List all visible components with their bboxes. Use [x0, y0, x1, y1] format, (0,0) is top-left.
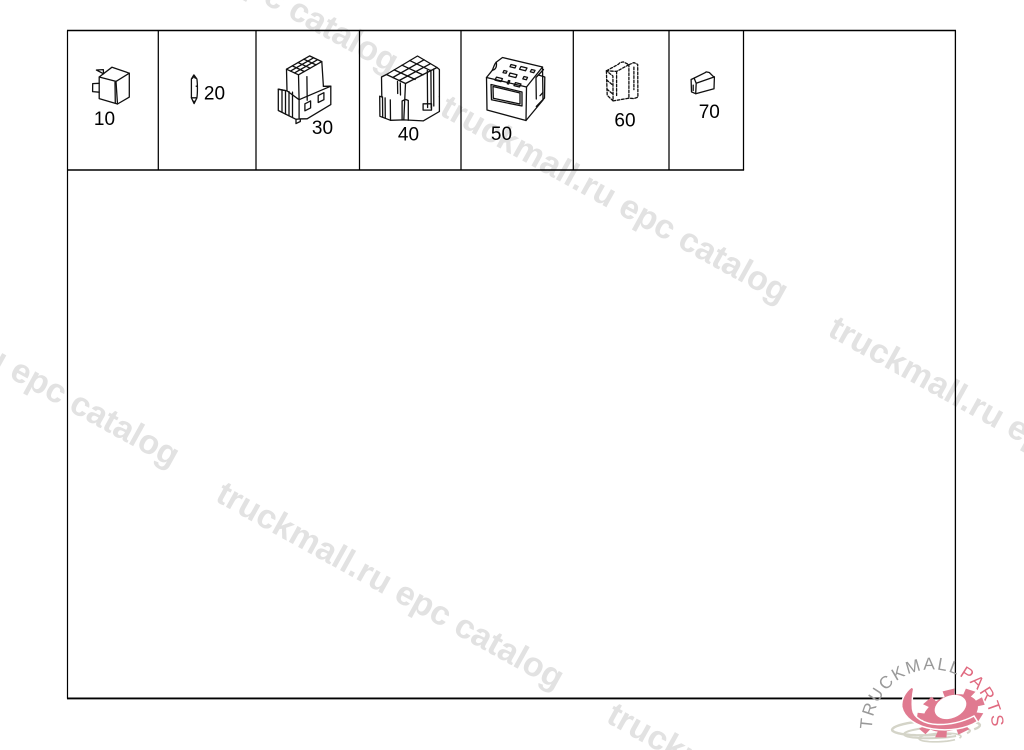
svg-text:truckmall.ru epc catalog: truckmall.ru epc catalog	[822, 309, 1024, 532]
svg-text:10: 10	[94, 109, 115, 130]
svg-text:60: 60	[614, 111, 635, 132]
svg-text:truckmall.ru epc catalog: truckmall.ru epc catalog	[45, 0, 406, 81]
svg-text:truckmall.ru epc catalog: truckmall.ru epc catalog	[0, 252, 186, 475]
svg-text:30: 30	[312, 118, 333, 139]
svg-text:20: 20	[204, 84, 225, 105]
svg-text:50: 50	[491, 124, 512, 145]
svg-text:40: 40	[398, 125, 419, 146]
svg-text:70: 70	[699, 102, 720, 123]
svg-text:truckmall.ru epc catalog: truckmall.ru epc catalog	[210, 474, 571, 697]
